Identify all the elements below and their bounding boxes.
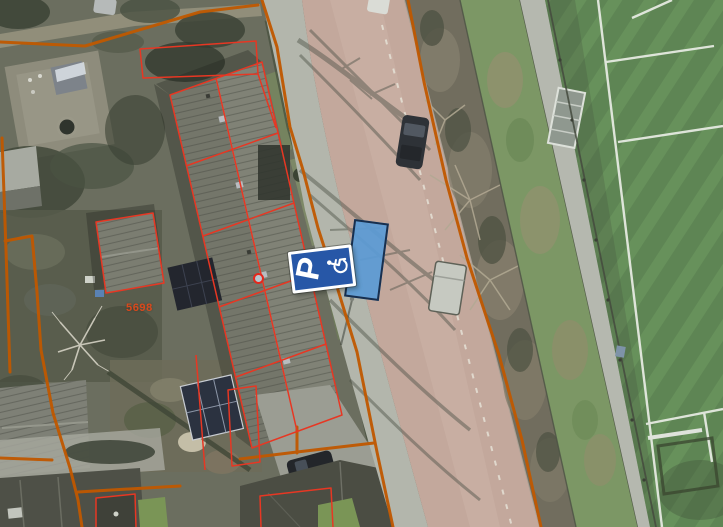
wheelchair-icon [324,252,350,278]
disabled-parking-sign[interactable]: P [288,244,357,293]
parcel-number-label: 5698 [126,302,153,314]
map-viewport[interactable]: 5698 P [0,0,723,527]
vertex-marker[interactable] [253,273,264,284]
